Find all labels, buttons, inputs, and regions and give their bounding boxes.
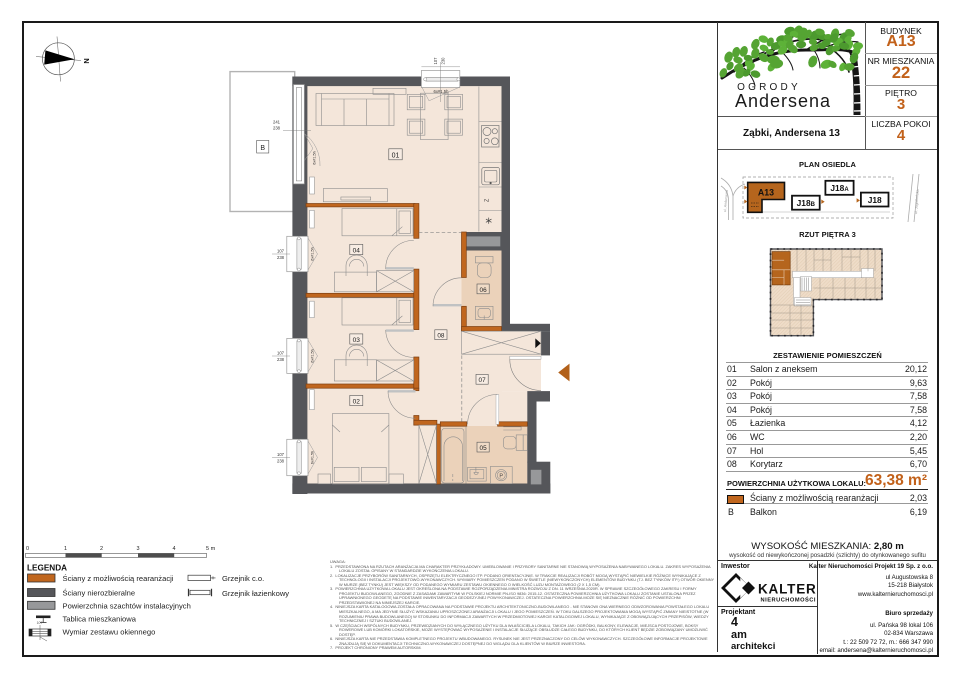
svg-text:05: 05	[480, 445, 488, 452]
svg-text:08: 08	[437, 333, 445, 340]
svg-text:2: 2	[100, 546, 103, 552]
svg-text:6x#1,5h: 6x#1,5h	[311, 247, 315, 261]
svg-text:4: 4	[173, 546, 176, 552]
svg-text:07: 07	[479, 377, 487, 384]
svg-text:107: 107	[37, 621, 43, 625]
svg-text:A13: A13	[758, 187, 774, 197]
svg-text:238: 238	[277, 458, 285, 463]
svg-text:238: 238	[273, 125, 281, 130]
svg-text:J18: J18	[868, 195, 882, 205]
svg-text:Ściany nierozbieralne: Ściany nierozbieralne	[63, 589, 136, 598]
svg-text:Grzejnik łazienkowy: Grzejnik łazienkowy	[222, 589, 289, 598]
svg-text:04: 04	[353, 248, 361, 255]
svg-text:6x#1,5h: 6x#1,5h	[311, 349, 315, 363]
svg-text:B: B	[260, 145, 265, 152]
svg-text:02: 02	[353, 399, 361, 406]
svg-text:6x#1,5h: 6x#1,5h	[434, 89, 450, 94]
svg-text:107: 107	[277, 248, 285, 253]
svg-text:ul. Jagiellońska: ul. Jagiellońska	[914, 189, 920, 214]
svg-text:Wymiar zestawu okiennego: Wymiar zestawu okiennego	[63, 627, 156, 636]
svg-text:Powierzchnia szachtów instalac: Powierzchnia szachtów instalacyjnych	[63, 601, 191, 610]
svg-text:P: P	[499, 473, 503, 479]
svg-text:LEGENDA: LEGENDA	[27, 564, 67, 573]
svg-text:5 m: 5 m	[206, 546, 216, 552]
svg-text:107: 107	[277, 350, 285, 355]
svg-text:06: 06	[480, 287, 488, 294]
svg-text:Grzejnik c.o.: Grzejnik c.o.	[222, 574, 264, 583]
svg-text:ul. Andersena: ul. Andersena	[723, 190, 729, 212]
svg-text:238: 238	[277, 255, 285, 260]
svg-text:3: 3	[137, 546, 140, 552]
svg-text:0: 0	[26, 546, 29, 552]
svg-text:Ściany z możliwością rearanżac: Ściany z możliwością rearanżacji	[63, 574, 174, 583]
svg-text:N: N	[82, 58, 91, 63]
svg-text:01: 01	[392, 152, 400, 159]
svg-text:6x#1,5h: 6x#1,5h	[311, 451, 315, 465]
svg-text:03: 03	[353, 337, 361, 344]
svg-text:NIERUCHOMOŚCI: NIERUCHOMOŚCI	[761, 597, 816, 604]
svg-text:107: 107	[277, 452, 285, 457]
svg-text:241: 241	[273, 120, 281, 125]
svg-text:Tablica mieszkaniowa: Tablica mieszkaniowa	[63, 614, 137, 623]
svg-text:230: 230	[440, 57, 445, 65]
svg-text:6x#1,5h: 6x#1,5h	[313, 151, 317, 165]
svg-text:238: 238	[277, 357, 285, 362]
svg-text:KALTER: KALTER	[758, 582, 817, 597]
svg-text:107: 107	[433, 57, 438, 65]
svg-text:1: 1	[64, 546, 67, 552]
